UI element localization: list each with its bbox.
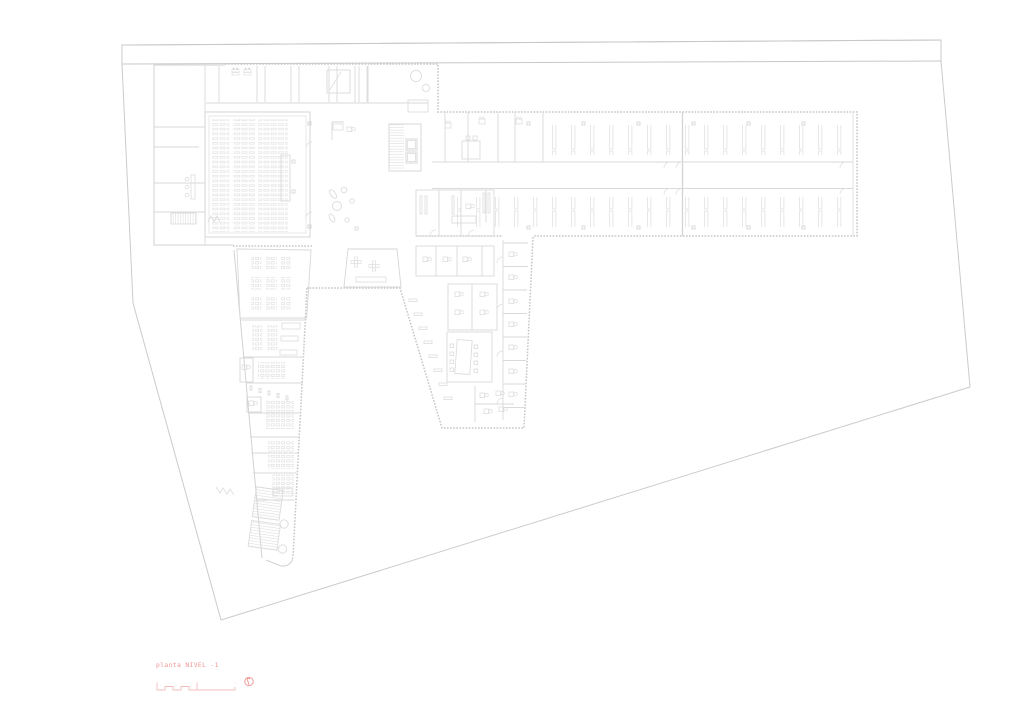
toilets [475,386,514,422]
title-block: planta NIVEL -1 ″ [156,662,253,690]
colonnade [250,386,288,400]
corridor-walls [432,162,853,189]
storage-stalls-top [545,125,850,155]
left-block [154,65,428,245]
planter-circle [410,70,421,81]
floor-plan: planta NIVEL -1 ″ [0,0,1024,724]
classroom-desks [251,257,300,496]
seating-rows [212,119,288,232]
reception-desk [332,122,344,140]
graphic-scale-bar [157,683,235,691]
drawing-sheet: planta NIVEL -1 ″ [0,0,1024,724]
southwest-wing [216,249,311,553]
stair-core [389,124,421,171]
auditorium [205,112,312,237]
plan-title: planta NIVEL -1 [156,662,219,669]
wall-benches [409,299,452,400]
planting-stones [328,187,358,230]
north-arrow-icon [245,677,253,685]
meeting-room [447,332,492,382]
lab-rooms [445,112,543,162]
right-wing [432,112,853,236]
office-strip [497,240,528,420]
storage-stalls-bottom [448,197,850,227]
lounge-room [344,249,401,287]
landscape-zigzag [216,487,234,495]
entrance-hall [308,66,430,287]
scale-end-mark: ″ [235,682,238,687]
